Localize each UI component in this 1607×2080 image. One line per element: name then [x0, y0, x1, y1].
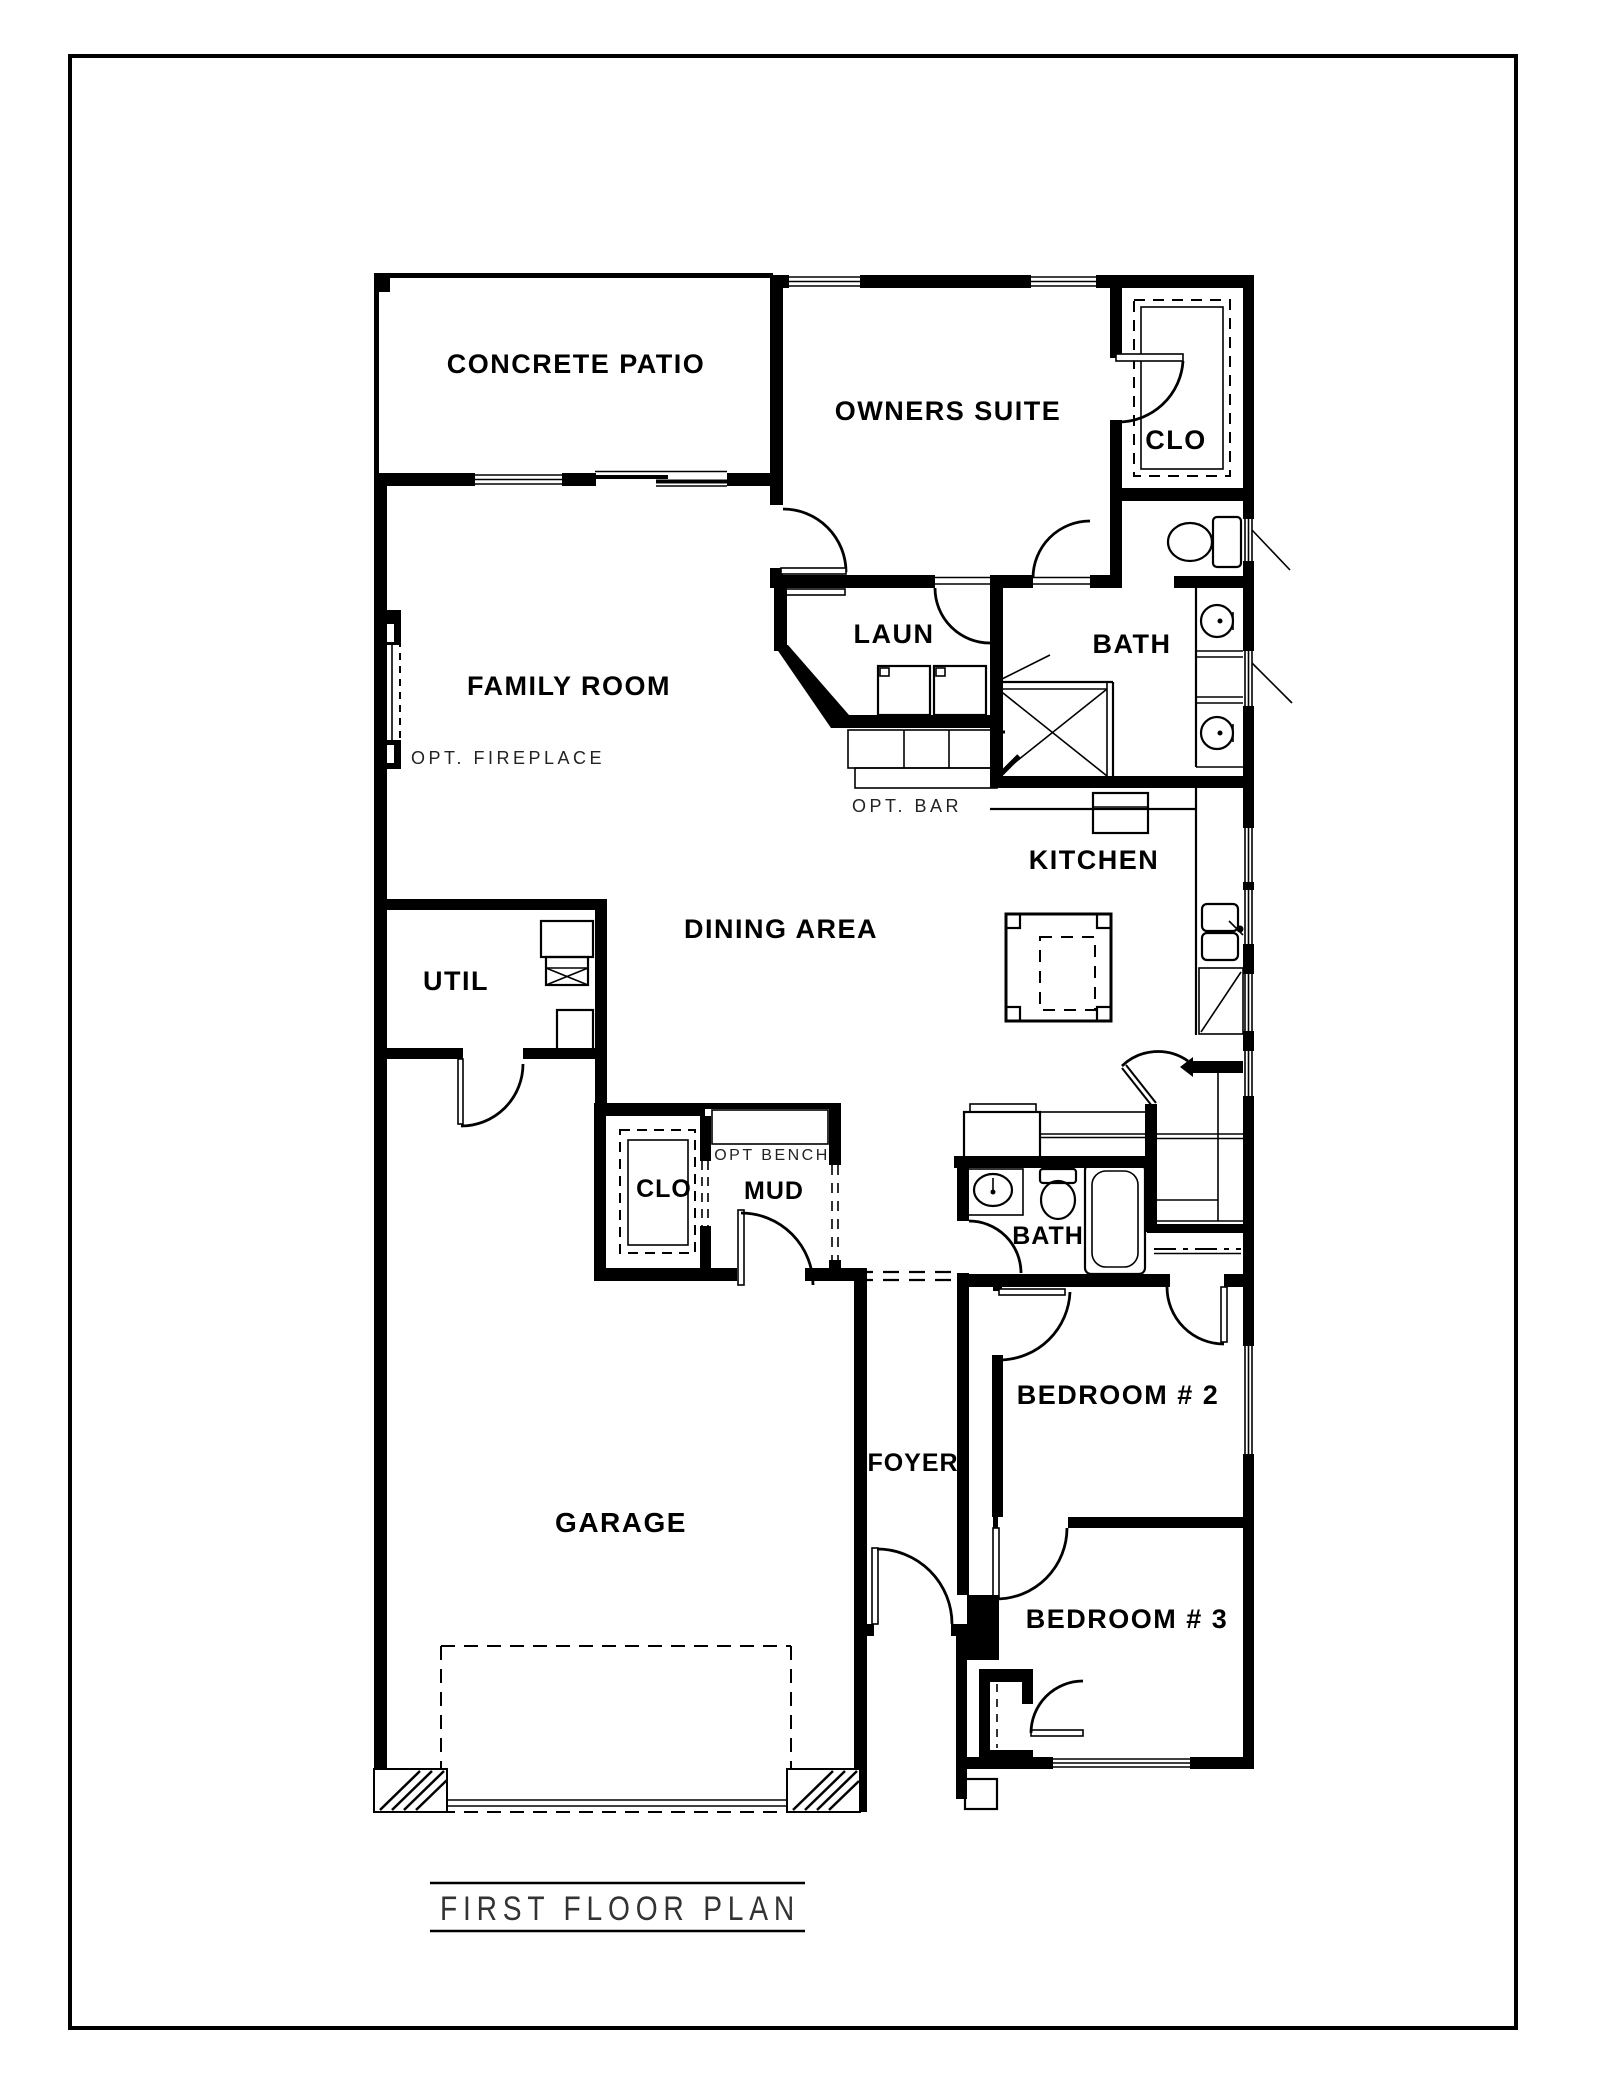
svg-text:KITCHEN: KITCHEN: [1029, 845, 1160, 875]
svg-text:FAMILY ROOM: FAMILY ROOM: [467, 671, 671, 701]
svg-text:GARAGE: GARAGE: [555, 1507, 687, 1538]
svg-text:DINING AREA: DINING AREA: [684, 914, 878, 944]
svg-text:OPT. FIREPLACE: OPT. FIREPLACE: [411, 748, 605, 768]
svg-text:CLO: CLO: [1145, 425, 1207, 455]
svg-text:BATH: BATH: [1093, 629, 1172, 659]
svg-text:UTIL: UTIL: [423, 966, 489, 996]
svg-text:FIRST FLOOR PLAN: FIRST FLOOR PLAN: [440, 1890, 800, 1928]
svg-text:LAUN: LAUN: [854, 619, 935, 649]
svg-text:MUD: MUD: [744, 1177, 804, 1205]
svg-text:CLO: CLO: [636, 1175, 692, 1203]
svg-text:BEDROOM # 2: BEDROOM # 2: [1017, 1380, 1220, 1410]
svg-text:FOYER: FOYER: [867, 1449, 958, 1477]
svg-text:BEDROOM # 3: BEDROOM # 3: [1026, 1604, 1229, 1634]
svg-text:CONCRETE PATIO: CONCRETE PATIO: [447, 349, 706, 379]
svg-text:BATH: BATH: [1012, 1222, 1084, 1250]
svg-text:OPT BENCH: OPT BENCH: [714, 1147, 830, 1164]
svg-text:OWNERS SUITE: OWNERS SUITE: [835, 396, 1062, 426]
svg-text:OPT. BAR: OPT. BAR: [852, 796, 962, 816]
